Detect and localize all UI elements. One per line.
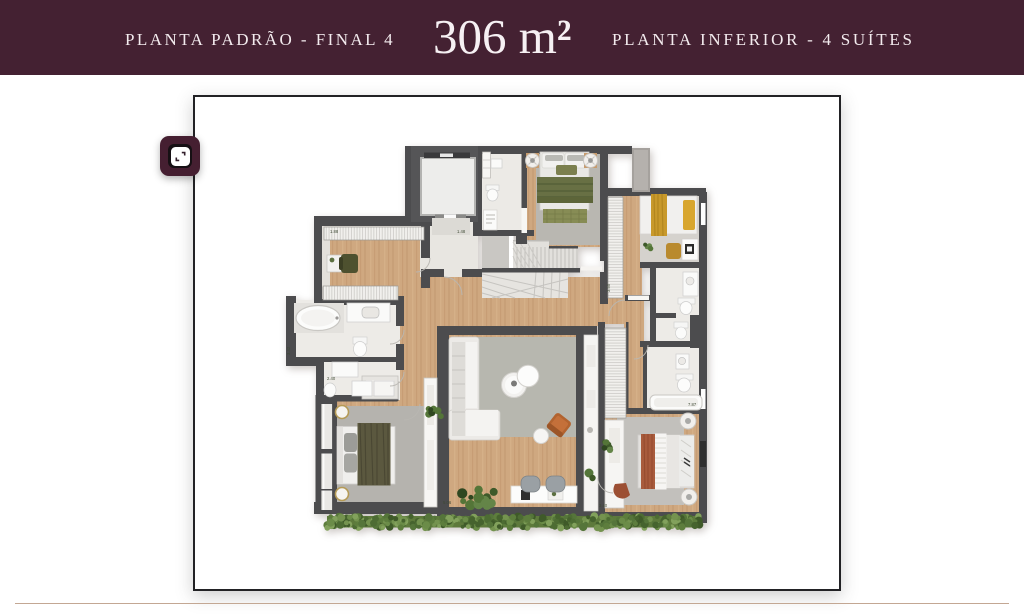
svg-text:2.40: 2.40 [327, 376, 336, 381]
svg-text:3.50: 3.50 [606, 283, 611, 292]
svg-text:1.48: 1.48 [457, 229, 466, 234]
svg-text:5.06: 5.06 [443, 500, 452, 505]
svg-text:7.87: 7.87 [688, 402, 697, 407]
svg-text:3.42: 3.42 [286, 346, 291, 355]
svg-text:3.40: 3.40 [599, 503, 608, 508]
svg-text:1.88: 1.88 [330, 229, 339, 234]
